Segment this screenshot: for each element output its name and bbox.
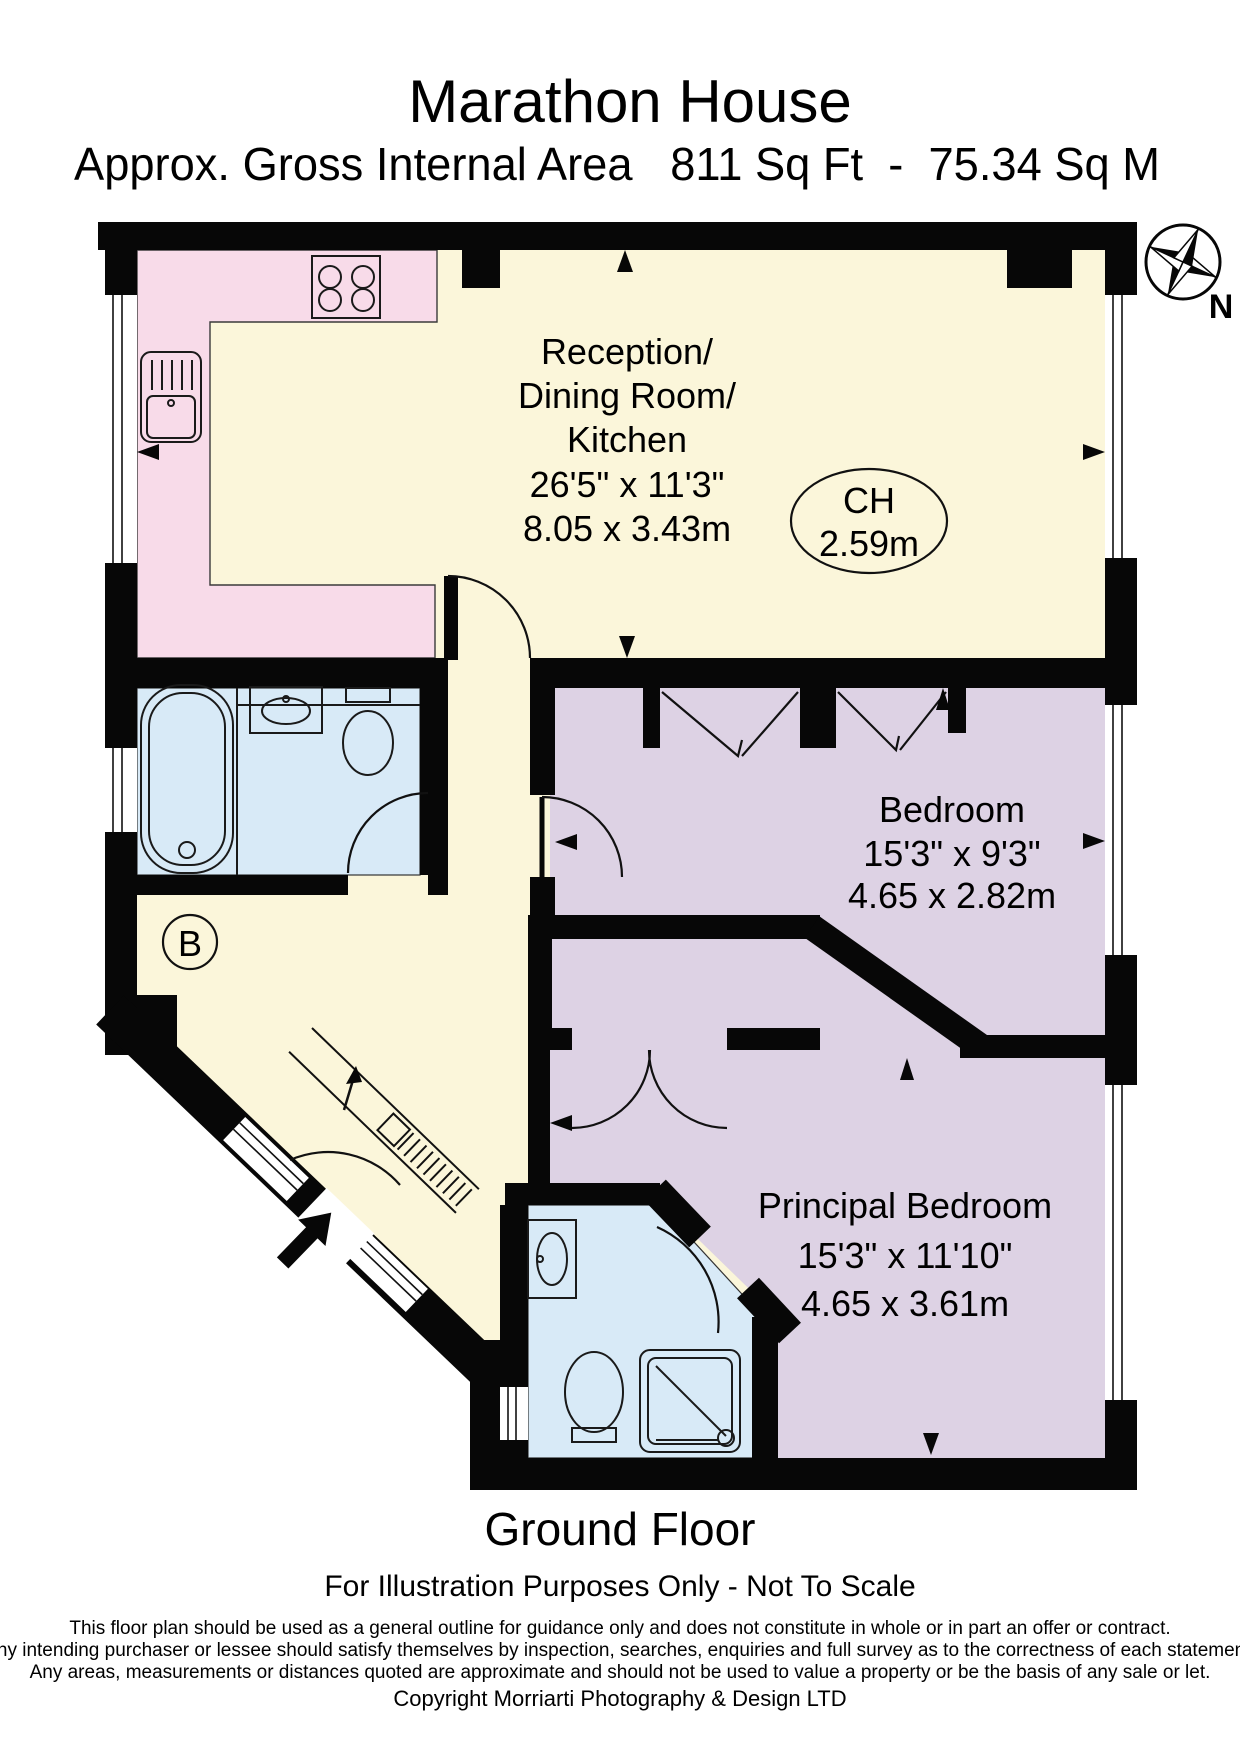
copyright: Copyright Morriarti Photography & Design… bbox=[393, 1686, 846, 1711]
reception-dims-imperial: 26'5" x 11'3" bbox=[530, 464, 725, 505]
principal-bedroom-dims-metric: 4.65 x 3.61m bbox=[801, 1283, 1009, 1324]
bedroom-label: Bedroom bbox=[879, 789, 1025, 830]
ceiling-height-label: CH bbox=[843, 480, 895, 521]
bedroom-dims-imperial: 15'3" x 9'3" bbox=[863, 833, 1040, 874]
page-title: Marathon House bbox=[408, 68, 852, 135]
reception-label-1: Reception/ bbox=[541, 331, 713, 372]
footer: Ground Floor For Illustration Purposes O… bbox=[0, 1503, 1240, 1711]
kitchen-window bbox=[105, 295, 137, 563]
principal-bedroom-label: Principal Bedroom bbox=[758, 1185, 1052, 1226]
reception-label-3: Kitchen bbox=[567, 419, 687, 460]
reception-window bbox=[1105, 295, 1137, 558]
bathroom-window bbox=[105, 748, 137, 832]
floorplan-svg: Marathon House Approx. Gross Internal Ar… bbox=[0, 0, 1240, 1753]
disclaimer-line-3: Any areas, measurements or distances quo… bbox=[30, 1662, 1211, 1683]
ceiling-height-value: 2.59m bbox=[819, 523, 919, 564]
ensuite-window bbox=[500, 1387, 528, 1440]
reception-dims-metric: 8.05 x 3.43m bbox=[523, 508, 731, 549]
bedroom-dims-metric: 4.65 x 2.82m bbox=[848, 875, 1056, 916]
principal-bedroom-window bbox=[1105, 1085, 1137, 1400]
floor-label: Ground Floor bbox=[484, 1503, 755, 1555]
page-subtitle: Approx. Gross Internal Area 811 Sq Ft - … bbox=[74, 138, 1160, 190]
reception-label-2: Dining Room/ bbox=[518, 375, 736, 416]
disclaimer-line-1: This floor plan should be used as a gene… bbox=[69, 1618, 1170, 1639]
principal-bedroom-dims-imperial: 15'3" x 11'10" bbox=[798, 1235, 1013, 1276]
north-label: N bbox=[1209, 288, 1234, 326]
scale-note: For Illustration Purposes Only - Not To … bbox=[324, 1570, 915, 1603]
floorplan-page: Marathon House Approx. Gross Internal Ar… bbox=[0, 0, 1240, 1753]
bedroom-window bbox=[1105, 705, 1137, 955]
boiler-label: B bbox=[178, 923, 202, 964]
disclaimer-line-2: Any intending purchaser or lessee should… bbox=[0, 1640, 1240, 1661]
